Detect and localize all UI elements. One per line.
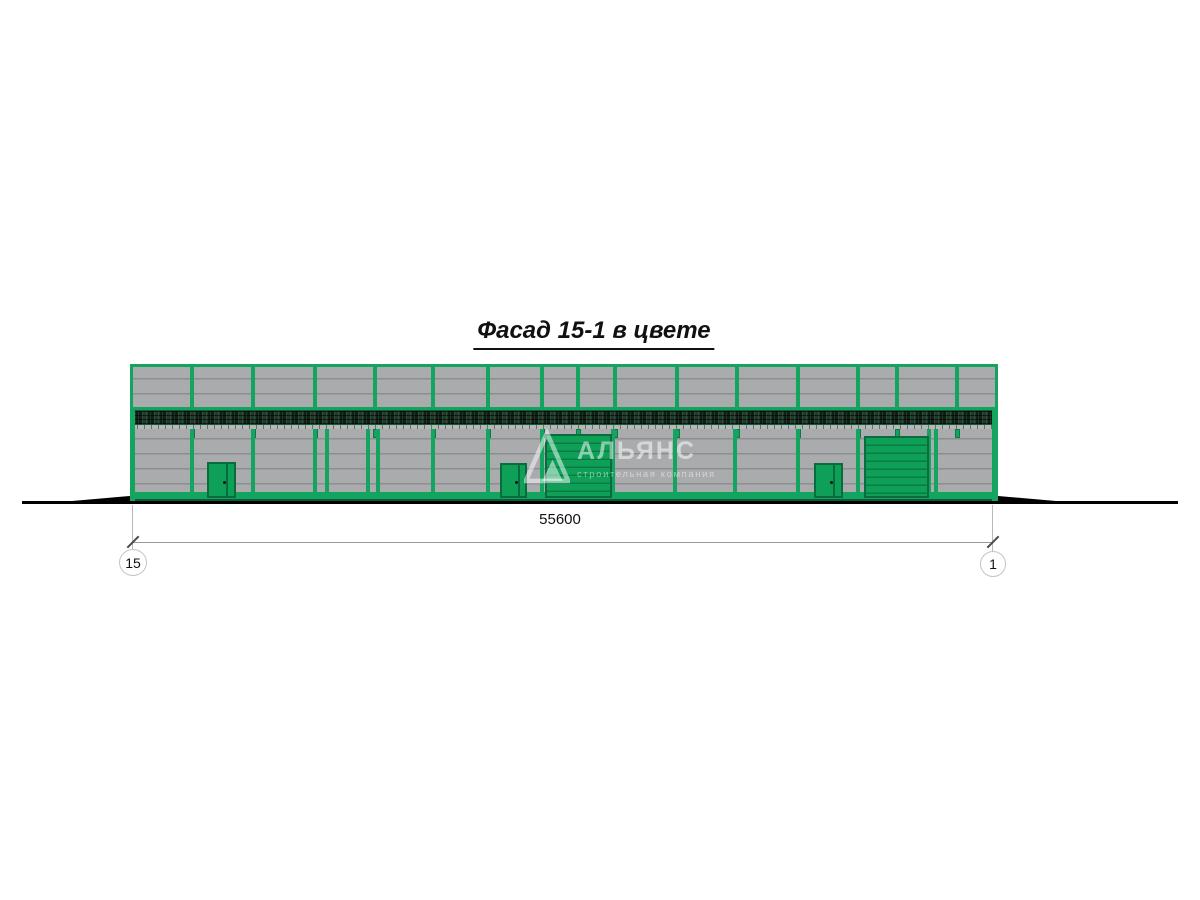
wall-column (190, 429, 194, 492)
wall-column (325, 429, 329, 492)
wall-column (540, 429, 544, 492)
glazing-mullion (431, 367, 435, 410)
door-handle (223, 481, 226, 484)
column-stub (955, 429, 960, 438)
ground-ramp-right (998, 496, 1056, 501)
glazing-mullion (486, 367, 490, 410)
glazing-mullion (955, 367, 959, 410)
dimension-value: 55600 (533, 511, 587, 528)
glazing-mullion (675, 367, 679, 410)
wall-column (486, 429, 490, 492)
glazing-mullion (796, 367, 800, 410)
door-leaf-split (226, 464, 228, 496)
sectional-gate (545, 434, 612, 498)
wall-column (313, 429, 317, 492)
axis-marker-1: 1 (980, 551, 1006, 577)
glazing-mullion (313, 367, 317, 410)
facade-generated (130, 364, 998, 501)
axis-marker-15: 15 (119, 549, 147, 576)
door-leaf-split (833, 465, 835, 496)
glazing-mullion (576, 367, 580, 410)
wall-column (934, 429, 938, 492)
glazing-mullion (540, 367, 544, 410)
drawing-canvas: Фасад 15-1 в цвете АЛЬЯНС строительная к… (0, 0, 1200, 900)
wall-column (376, 429, 380, 492)
sectional-gate (864, 436, 929, 498)
ground-ramp-left (72, 496, 130, 501)
glazing-mullion (251, 367, 255, 410)
building-facade (130, 364, 998, 501)
glazing-mullion (735, 367, 739, 410)
drawing-title: Фасад 15-1 в цвете (473, 317, 714, 350)
glazing-mullion (373, 367, 377, 410)
wall-column (673, 429, 677, 492)
door-handle (515, 481, 518, 484)
dimension-line (133, 542, 993, 543)
glazing-mullion (856, 367, 860, 410)
service-door (500, 463, 527, 498)
ground-line (22, 501, 1178, 504)
wall-column (431, 429, 435, 492)
glazing-mullion (613, 367, 617, 410)
glazing-mullion (895, 367, 899, 410)
service-door (207, 462, 236, 498)
wall-column (856, 429, 860, 492)
glazing-mullion (190, 367, 194, 410)
wall-column (366, 429, 370, 492)
wall-column (796, 429, 800, 492)
wall-column (251, 429, 255, 492)
service-door (814, 463, 843, 498)
door-leaf-split (518, 465, 520, 496)
wall-column (733, 429, 737, 492)
